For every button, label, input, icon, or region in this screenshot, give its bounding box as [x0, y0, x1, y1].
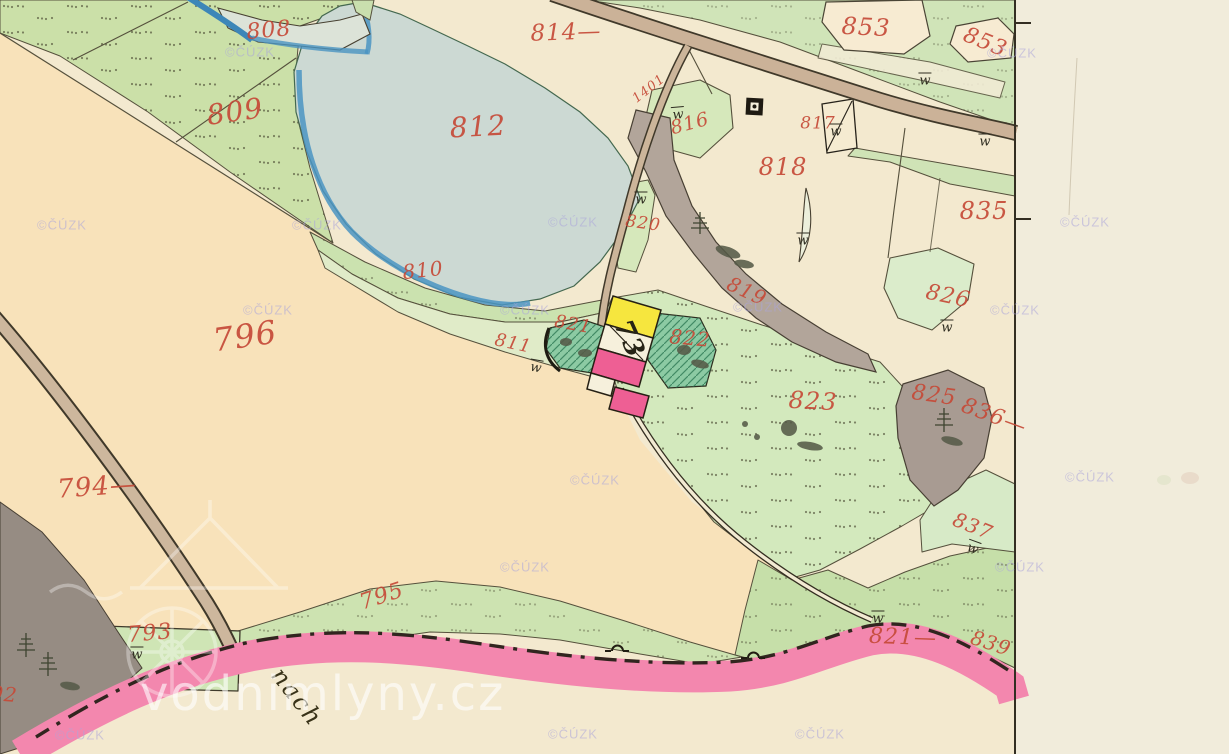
parcel-number-825: 825: [910, 382, 958, 410]
meadow-symbol: w: [671, 106, 685, 122]
meadow-symbol: w: [918, 73, 931, 88]
site-watermark-text: vodnimlyny.cz: [140, 666, 505, 722]
cuzk-watermark: ©ČÚZK: [995, 560, 1045, 575]
cuzk-watermark: ©ČÚZK: [548, 215, 598, 230]
parcel-number-853: 853: [841, 14, 891, 41]
meadow-symbol: w: [130, 647, 143, 662]
cuzk-watermark: ©ČÚZK: [990, 303, 1040, 318]
meadow-symbol: w: [978, 134, 991, 149]
parcel-number-818: 818: [759, 155, 808, 179]
map-viewport[interactable]: 808809812814—816817818819820810811821822…: [0, 0, 1229, 754]
parcel-number-821: 821—: [869, 626, 938, 650]
parcel-number-814: 814—: [530, 20, 602, 45]
cuzk-watermark: ©ČÚZK: [570, 473, 620, 488]
cuzk-watermark: ©ČÚZK: [37, 218, 87, 233]
parcel-number-796: 796: [211, 316, 279, 357]
meadow-symbol: w: [634, 192, 647, 207]
cuzk-watermark: ©ČÚZK: [55, 728, 105, 743]
cuzk-watermark: ©ČÚZK: [733, 300, 783, 315]
parcel-number-808: 808: [246, 18, 293, 44]
meadow-symbol: w: [871, 611, 884, 626]
cuzk-watermark: ©ČÚZK: [987, 46, 1037, 61]
meadow-symbol: w: [829, 124, 842, 139]
parcel-number-822: 822: [669, 326, 712, 350]
cuzk-watermark: ©ČÚZK: [500, 303, 550, 318]
meadow-symbol: w: [940, 320, 953, 335]
cuzk-watermark: ©ČÚZK: [243, 303, 293, 318]
parcel-number-835: 835: [960, 199, 1009, 223]
parcel-number-809: 809: [205, 94, 265, 130]
cuzk-watermark: ©ČÚZK: [225, 45, 275, 60]
cuzk-watermark: ©ČÚZK: [500, 560, 550, 575]
parcel-number-794: 794—: [56, 471, 137, 502]
cadastral-map-canvas: [0, 0, 1229, 754]
parcel-number-810: 810: [401, 258, 444, 282]
cuzk-watermark: ©ČÚZK: [1065, 470, 1115, 485]
parcel-number-92: 92: [0, 683, 19, 705]
cuzk-watermark: ©ČÚZK: [1060, 215, 1110, 230]
parcel-number-823: 823: [788, 388, 838, 415]
meadow-symbol: w: [528, 358, 544, 375]
parcel-number-820: 820: [624, 213, 661, 235]
cuzk-watermark: ©ČÚZK: [292, 218, 342, 233]
cuzk-watermark: ©ČÚZK: [795, 727, 845, 742]
parcel-number-812: 812: [449, 112, 507, 143]
cuzk-watermark: ©ČÚZK: [548, 727, 598, 742]
parcel-number-793: 793: [127, 621, 174, 647]
meadow-symbol: w: [796, 233, 809, 248]
chapel-symbol: [746, 98, 764, 116]
